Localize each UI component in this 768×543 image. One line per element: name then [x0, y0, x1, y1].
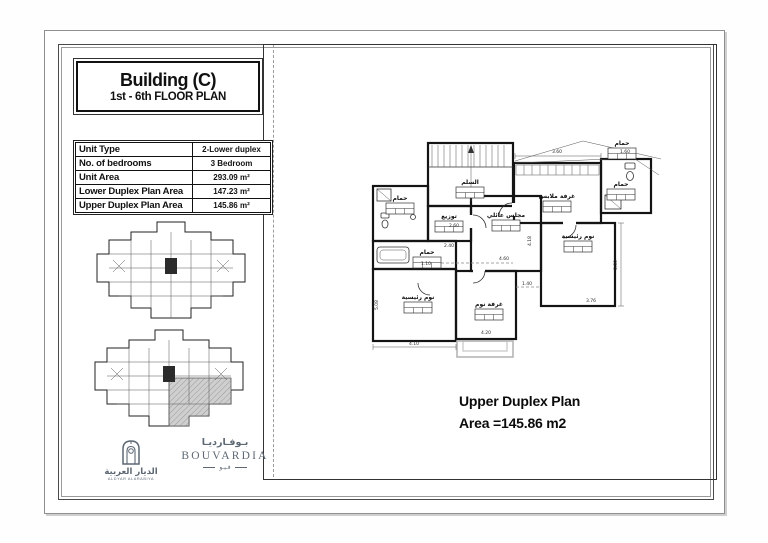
room-label: غرفة نوم — [475, 301, 503, 308]
divider — [235, 467, 247, 468]
svg-text:3.60: 3.60 — [552, 149, 562, 155]
caption-line2: Area =145.86 m2 — [459, 412, 580, 434]
spec-value: 2-Lower duplex — [193, 143, 271, 157]
wardrobe — [516, 165, 599, 175]
floor-plan: حمام السلم غرفة ملابس حمام حمام حمام توز… — [369, 137, 709, 399]
room-label: توزيع — [441, 213, 457, 220]
spec-value: 293.09 m² — [193, 171, 271, 185]
drawing-sheet-page: Building (C) 1st - 6th FLOOR PLAN Unit T… — [0, 0, 768, 543]
svg-text:3.76: 3.76 — [586, 298, 596, 304]
room-label: حمام — [393, 195, 408, 202]
spec-label: Unit Area — [76, 171, 193, 185]
svg-text:4.20: 4.20 — [481, 330, 491, 336]
svg-text:5.50: 5.50 — [613, 260, 619, 270]
column-divider-dashed — [273, 45, 274, 477]
spec-label: Lower Duplex Plan Area — [76, 185, 193, 199]
spec-row: Unit Area 293.09 m² — [76, 171, 271, 185]
spec-label: Upper Duplex Plan Area — [76, 199, 193, 213]
aldyar-logo: الديار العربية ALDYAR ALARABIYA — [95, 438, 167, 482]
key-plan-upper — [87, 220, 255, 323]
svg-text:4.60: 4.60 — [499, 256, 509, 262]
floorplan-subtitle: 1st - 6th FLOOR PLAN — [110, 90, 226, 104]
room-label: نوم رئيسية — [402, 294, 435, 301]
stair-treads — [432, 145, 504, 167]
svg-text:1.40: 1.40 — [522, 281, 532, 287]
svg-text:4.10: 4.10 — [409, 341, 419, 347]
spec-value: 3 Bedroom — [193, 157, 271, 171]
divider — [203, 467, 215, 468]
bouvardia-logo: بـوفـارديـا BOUVARDIA فـيـو — [177, 436, 273, 472]
aldyar-name-english: ALDYAR ALARABIYA — [95, 477, 167, 482]
svg-text:1.10: 1.10 — [421, 261, 431, 267]
aldyar-name-arabic: الديار العربية — [95, 467, 167, 477]
room-label: غرفة ملابس — [539, 193, 576, 200]
spec-value: 145.86 m² — [193, 199, 271, 213]
bouvardia-name-english: BOUVARDIA — [177, 449, 273, 463]
spec-value: 147.23 m² — [193, 185, 271, 199]
sheet-outer-border: Building (C) 1st - 6th FLOOR PLAN Unit T… — [44, 30, 725, 514]
spec-row: Upper Duplex Plan Area 145.86 m² — [76, 199, 271, 213]
spec-row: Lower Duplex Plan Area 147.23 m² — [76, 185, 271, 199]
svg-text:1.60: 1.60 — [620, 149, 630, 155]
aldyar-arch-icon — [120, 438, 142, 465]
spec-row: Unit Type 2-Lower duplex — [76, 143, 271, 157]
room-label: نوم رئيسية — [562, 233, 595, 240]
svg-text:2.40: 2.40 — [444, 243, 454, 249]
room-label: السلم — [461, 179, 479, 186]
balcony — [457, 341, 513, 357]
building-title: Building (C) — [120, 70, 216, 90]
spec-label: No. of bedrooms — [76, 157, 193, 171]
svg-text:4.18: 4.18 — [527, 236, 533, 246]
shaded-unit — [169, 378, 231, 426]
spec-table: Unit Type 2-Lower duplex No. of bedrooms… — [73, 140, 273, 215]
key-plan-lower — [85, 328, 253, 431]
room-label: حمام — [614, 181, 629, 188]
room-label: حمام — [615, 140, 630, 147]
room-label: مجلس عائلي — [487, 212, 525, 219]
svg-text:5.08: 5.08 — [374, 300, 380, 310]
bouvardia-sub-arabic: فـيـو — [219, 463, 230, 472]
bouvardia-name-arabic: بـوفـارديـا — [177, 436, 273, 449]
spec-label: Unit Type — [76, 143, 193, 157]
spec-row: No. of bedrooms 3 Bedroom — [76, 157, 271, 171]
title-block: Building (C) 1st - 6th FLOOR PLAN — [73, 58, 263, 115]
svg-text:2.60: 2.60 — [449, 223, 459, 229]
room-label: حمام — [420, 249, 435, 256]
